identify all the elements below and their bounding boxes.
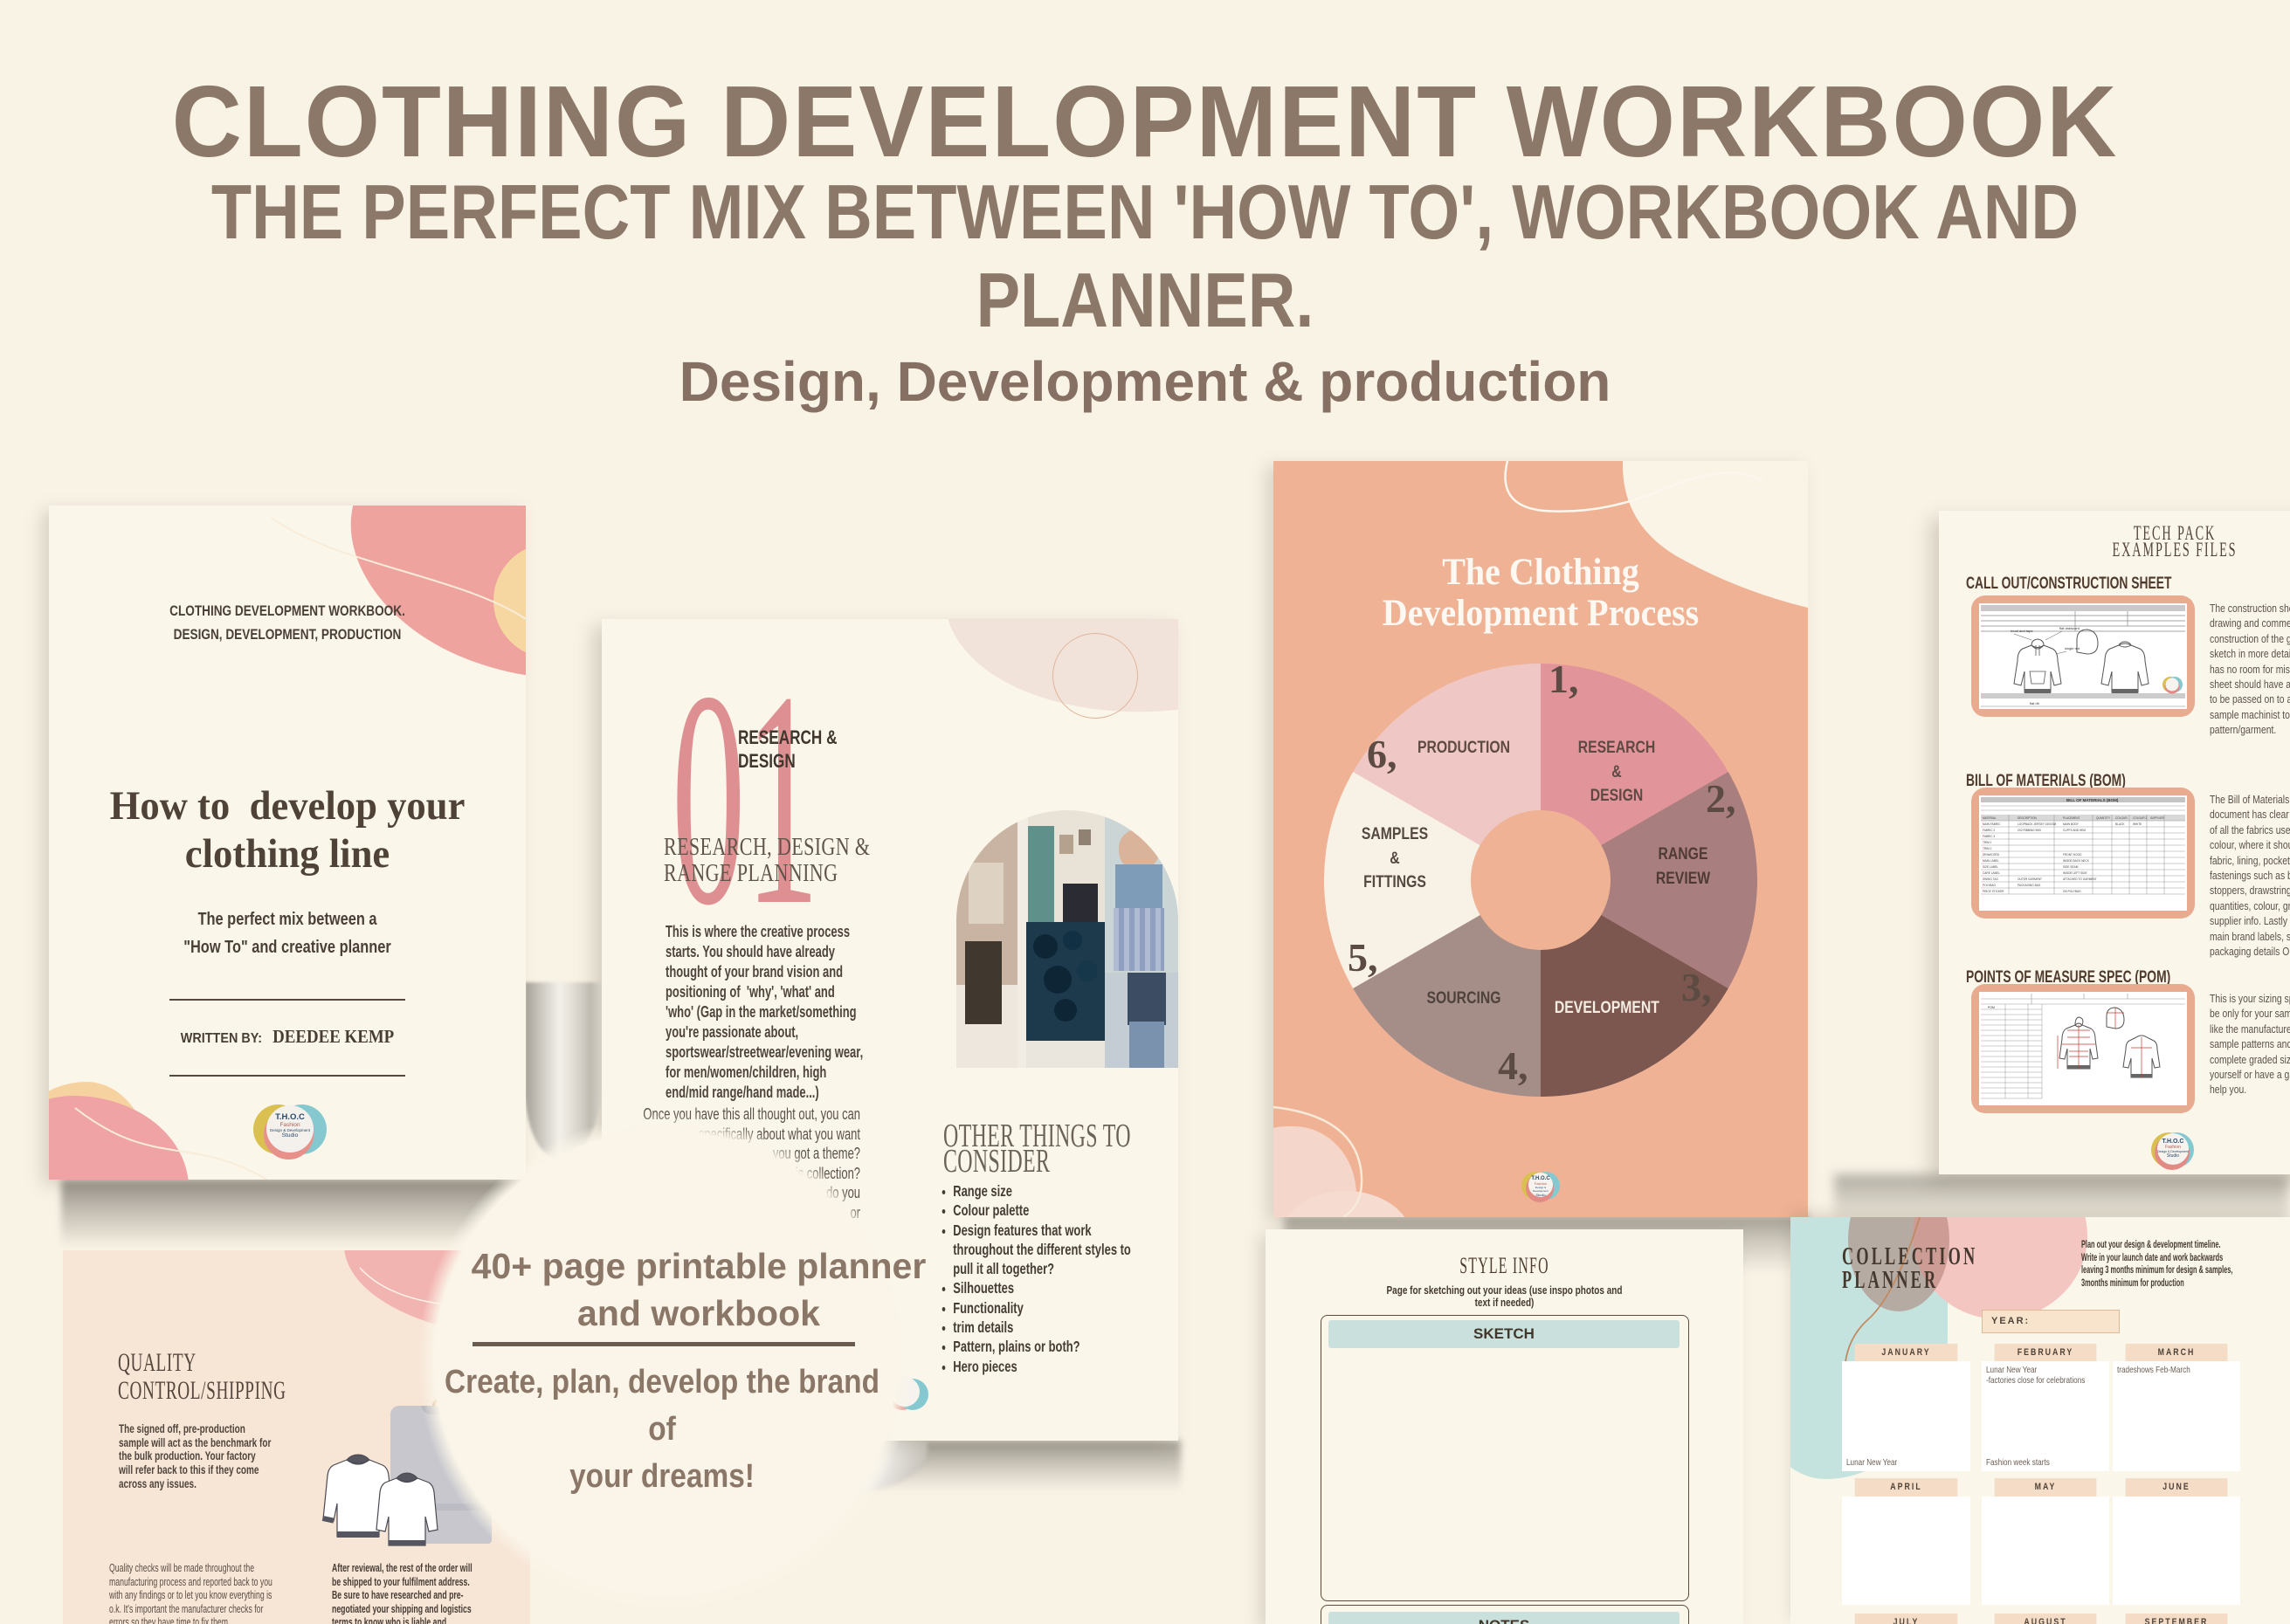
svg-text:SWING TAG: SWING TAG [1983,877,1998,881]
svg-text:FRONT HOOD: FRONT HOOD [2063,853,2082,857]
svg-text:INSIDE LEFT SIDE: INSIDE LEFT SIDE [2063,871,2087,875]
svg-text:WHITE: WHITE [2133,822,2142,826]
svg-text:MAIN LABEL: MAIN LABEL [1983,859,1999,863]
svg-text:SIDE SEAM: SIDE SEAM [2063,865,2079,869]
svg-text:BLACK: BLACK [2115,822,2125,826]
svg-text:MATERIAL: MATERIAL [1983,816,1997,820]
svg-text:INSIDE BACK NECK: INSIDE BACK NECK [2063,859,2090,863]
svg-text:MAIN FABRIC: MAIN FABRIC [1983,822,2001,826]
svg-text:flat rib: flat rib [2030,701,2040,705]
svg-text:SUPPLIER: SUPPLIER [2150,816,2164,820]
svg-text:FABRIC 2: FABRIC 2 [1983,829,1995,832]
svg-text:ATTACHED TO GARMENT: ATTACHED TO GARMENT [2063,877,2097,881]
svg-text:COLOUR: COLOUR [2115,816,2128,820]
svg-text:LOOPBACK JERSEY 240GSM: LOOPBACK JERSEY 240GSM [2018,822,2057,826]
svg-text:MAIN BODY: MAIN BODY [2063,822,2080,826]
svg-text:OUTER GARMENT: OUTER GARMENT [2018,877,2042,881]
svg-text:CARE LABEL: CARE LABEL [1983,871,2000,875]
svg-text:DESCRIPTION: DESCRIPTION [2018,816,2037,820]
svg-text:2X2 RIBBING 95/5: 2X2 RIBBING 95/5 [2018,829,2041,832]
svg-text:POLYBAG: POLYBAG [1983,884,1997,887]
svg-text:CUFFS AND HEM: CUFFS AND HEM [2063,829,2086,832]
svg-text:single not: single not [2065,646,2080,650]
svg-text:TRIM 2: TRIM 2 [1983,847,1992,850]
svg-text:FABRIC 3: FABRIC 3 [1983,835,1995,838]
svg-text:PLACEMENT: PLACEMENT [2063,816,2080,820]
svg-text:BILL OF MATERIALS (BOM): BILL OF MATERIALS (BOM) [2066,798,2119,802]
svg-text:flat drawcord: flat drawcord [2059,626,2080,630]
svg-text:ON POLYBAG: ON POLYBAG [2063,890,2081,893]
svg-text:hood and tape: hood and tape [2011,629,2033,633]
svg-text:COLOUR 2: COLOUR 2 [2133,816,2148,820]
svg-text:TRIM 1: TRIM 1 [1983,841,1992,844]
svg-text:PACKAGING BAG: PACKAGING BAG [2018,884,2041,887]
svg-text:PRICE STICKER: PRICE STICKER [1983,890,2004,893]
svg-text:POM: POM [1988,1006,1995,1009]
svg-text:DRAWCORD: DRAWCORD [1983,853,2000,857]
svg-text:QUANTITY: QUANTITY [2096,816,2111,820]
svg-text:SIZE LABEL: SIZE LABEL [1983,865,1998,869]
